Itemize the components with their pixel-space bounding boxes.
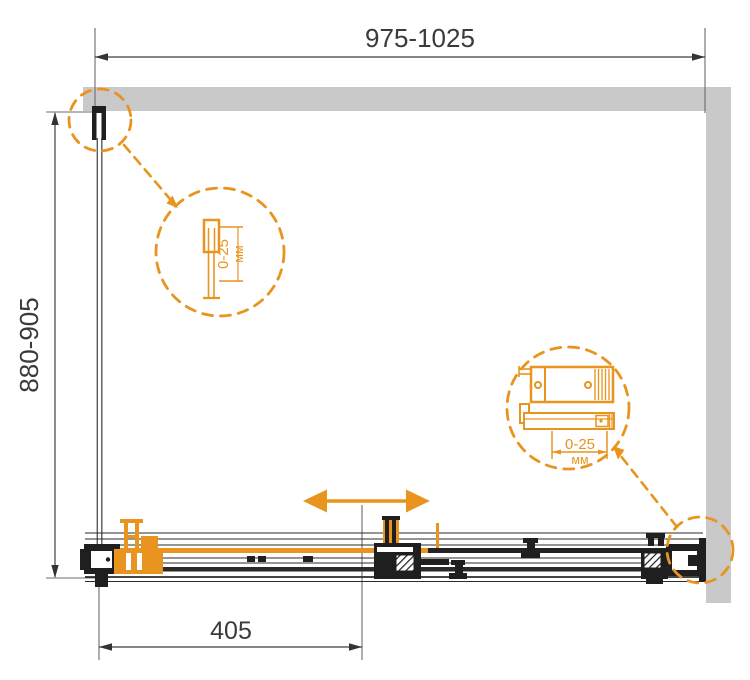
technical-drawing-canvas: 975-1025 880-905 405	[0, 0, 750, 680]
profile-adjust-unit-label: мм	[232, 245, 246, 262]
profile-adjust-range-label: 0-25	[215, 239, 232, 269]
back-wall	[83, 87, 731, 111]
door-offset-label: 405	[210, 617, 252, 645]
depth-dimension-label: 880-905	[14, 297, 44, 392]
wall-end-bracket	[666, 538, 706, 582]
width-dimension-label: 975-1025	[365, 23, 475, 53]
bracket-adjust-range-label: 0-25	[565, 436, 595, 453]
right-wall	[706, 87, 731, 603]
bracket-adjust-unit-label: мм	[571, 453, 588, 467]
